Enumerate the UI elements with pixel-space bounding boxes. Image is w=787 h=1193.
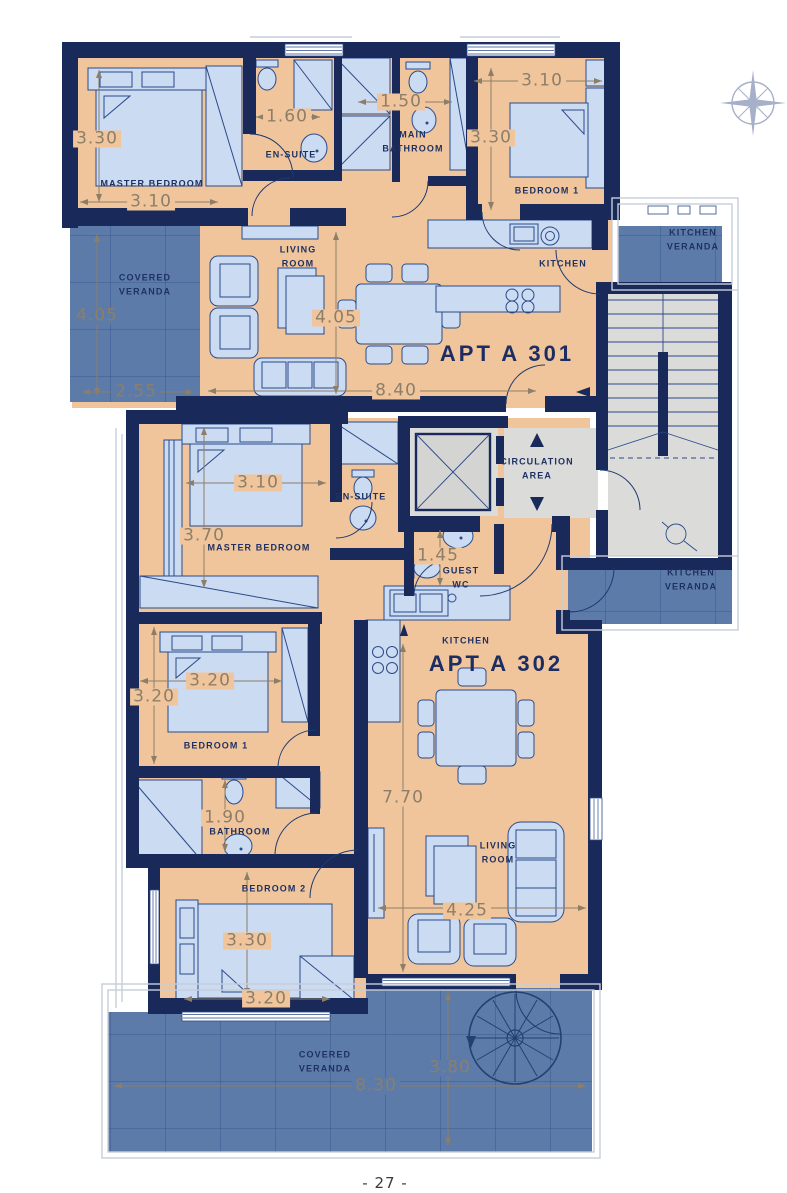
dim-a301-master-height: 3.30 (73, 131, 121, 148)
room-label-a301-kitchen-veranda: KITCHEN VERANDA (667, 227, 719, 254)
dim-a302-master-width: 3.10 (234, 475, 282, 492)
dim-a302-bedroom2-width: 3.20 (242, 991, 290, 1008)
dim-a301-bathroom-width: 1.50 (377, 94, 425, 111)
apartment-title-a302: APT A 302 (429, 651, 563, 677)
dim-a302-living-height: 7.70 (379, 790, 427, 807)
dim-a301-master-width: 3.10 (127, 194, 175, 211)
room-label-a301-kitchen: KITCHEN (539, 257, 587, 271)
floorplan-sheet: 3.30 MASTER BEDROOM 3.10 1.60 EN-SUITE 1… (0, 0, 787, 1193)
dim-a302-living-width: 4.25 (443, 903, 491, 920)
dim-a302-bedroom1-height: 3.20 (130, 689, 178, 706)
dim-a301-living-width: 8.40 (372, 383, 420, 400)
dim-a301-bedroom1-width: 3.10 (518, 73, 566, 90)
room-label-a302-guest-wc: GUEST WC (443, 565, 480, 592)
dim-a302-guestwc-height: 1.45 (414, 548, 462, 565)
room-label-a302-covered-veranda: COVERED VERANDA (299, 1049, 351, 1076)
room-label-a301-living: LIVING ROOM (280, 244, 317, 271)
room-label-a302-master: MASTER BEDROOM (208, 541, 311, 555)
dim-a301-veranda-height: 4.05 (73, 308, 121, 325)
room-label-a302-kitchen-veranda: KITCHEN VERANDA (665, 567, 717, 594)
room-label-a302-bathroom: BATHROOM (209, 825, 270, 839)
room-label-a301-bedroom1: BEDROOM 1 (515, 184, 579, 198)
room-label-a302-bedroom2: BEDROOM 2 (242, 882, 306, 896)
dim-a301-bedroom1-height: 3.30 (467, 130, 515, 147)
room-label-a302-living: LIVING ROOM (480, 840, 517, 867)
compass-icon (720, 70, 786, 136)
lift (416, 434, 490, 510)
room-label-a301-master: MASTER BEDROOM (101, 177, 204, 191)
room-label-circulation: CIRCULATION AREA (500, 456, 573, 483)
room-label-a302-kitchen: KITCHEN (442, 634, 490, 648)
dim-a301-veranda-width: 2.55 (112, 384, 160, 401)
dim-a301-ensuite-width: 1.60 (263, 109, 311, 126)
room-label-a301-covered-veranda: COVERED VERANDA (119, 272, 171, 299)
apartment-title-a301: APT A 301 (440, 341, 574, 367)
room-label-a302-ensuite: EN-SUITE (336, 490, 387, 504)
dim-a302-bathroom-height: 1.90 (201, 810, 249, 827)
dim-a302-bedroom2-height: 3.30 (223, 933, 271, 950)
dim-a302-veranda-width: 8.30 (352, 1078, 400, 1095)
room-label-a302-bedroom1: BEDROOM 1 (184, 739, 248, 753)
page-number: - 27 - (362, 1174, 407, 1192)
dim-a302-bedroom1-width: 3.20 (186, 673, 234, 690)
room-label-a301-ensuite: EN-SUITE (266, 148, 317, 162)
dim-a302-veranda-height: 3.80 (426, 1060, 474, 1077)
room-label-a301-main-bathroom: MAIN BATHROOM (382, 129, 443, 156)
dim-a301-living-height: 4.05 (312, 310, 360, 327)
